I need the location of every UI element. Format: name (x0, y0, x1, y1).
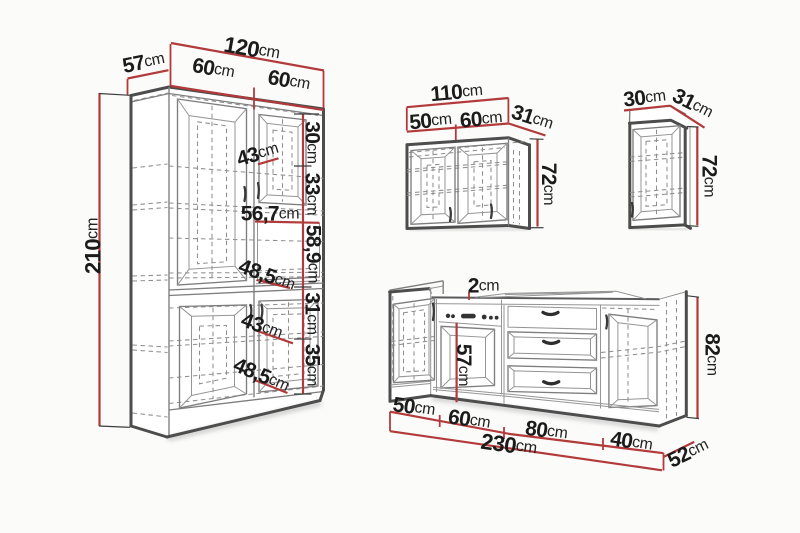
svg-text:35cm: 35cm (301, 344, 324, 387)
svg-text:58,9cm: 58,9cm (302, 225, 325, 284)
svg-text:82cm: 82cm (701, 333, 724, 376)
svg-text:57cm: 57cm (453, 344, 476, 387)
svg-text:33cm: 33cm (301, 173, 324, 216)
svg-text:72cm: 72cm (698, 155, 721, 198)
svg-text:72cm: 72cm (538, 163, 561, 206)
svg-text:2cm: 2cm (468, 274, 500, 297)
svg-text:210cm: 210cm (80, 218, 105, 274)
svg-text:31cm: 31cm (301, 292, 324, 335)
svg-text:30cm: 30cm (301, 121, 324, 164)
svg-text:56,7cm: 56,7cm (241, 202, 300, 225)
